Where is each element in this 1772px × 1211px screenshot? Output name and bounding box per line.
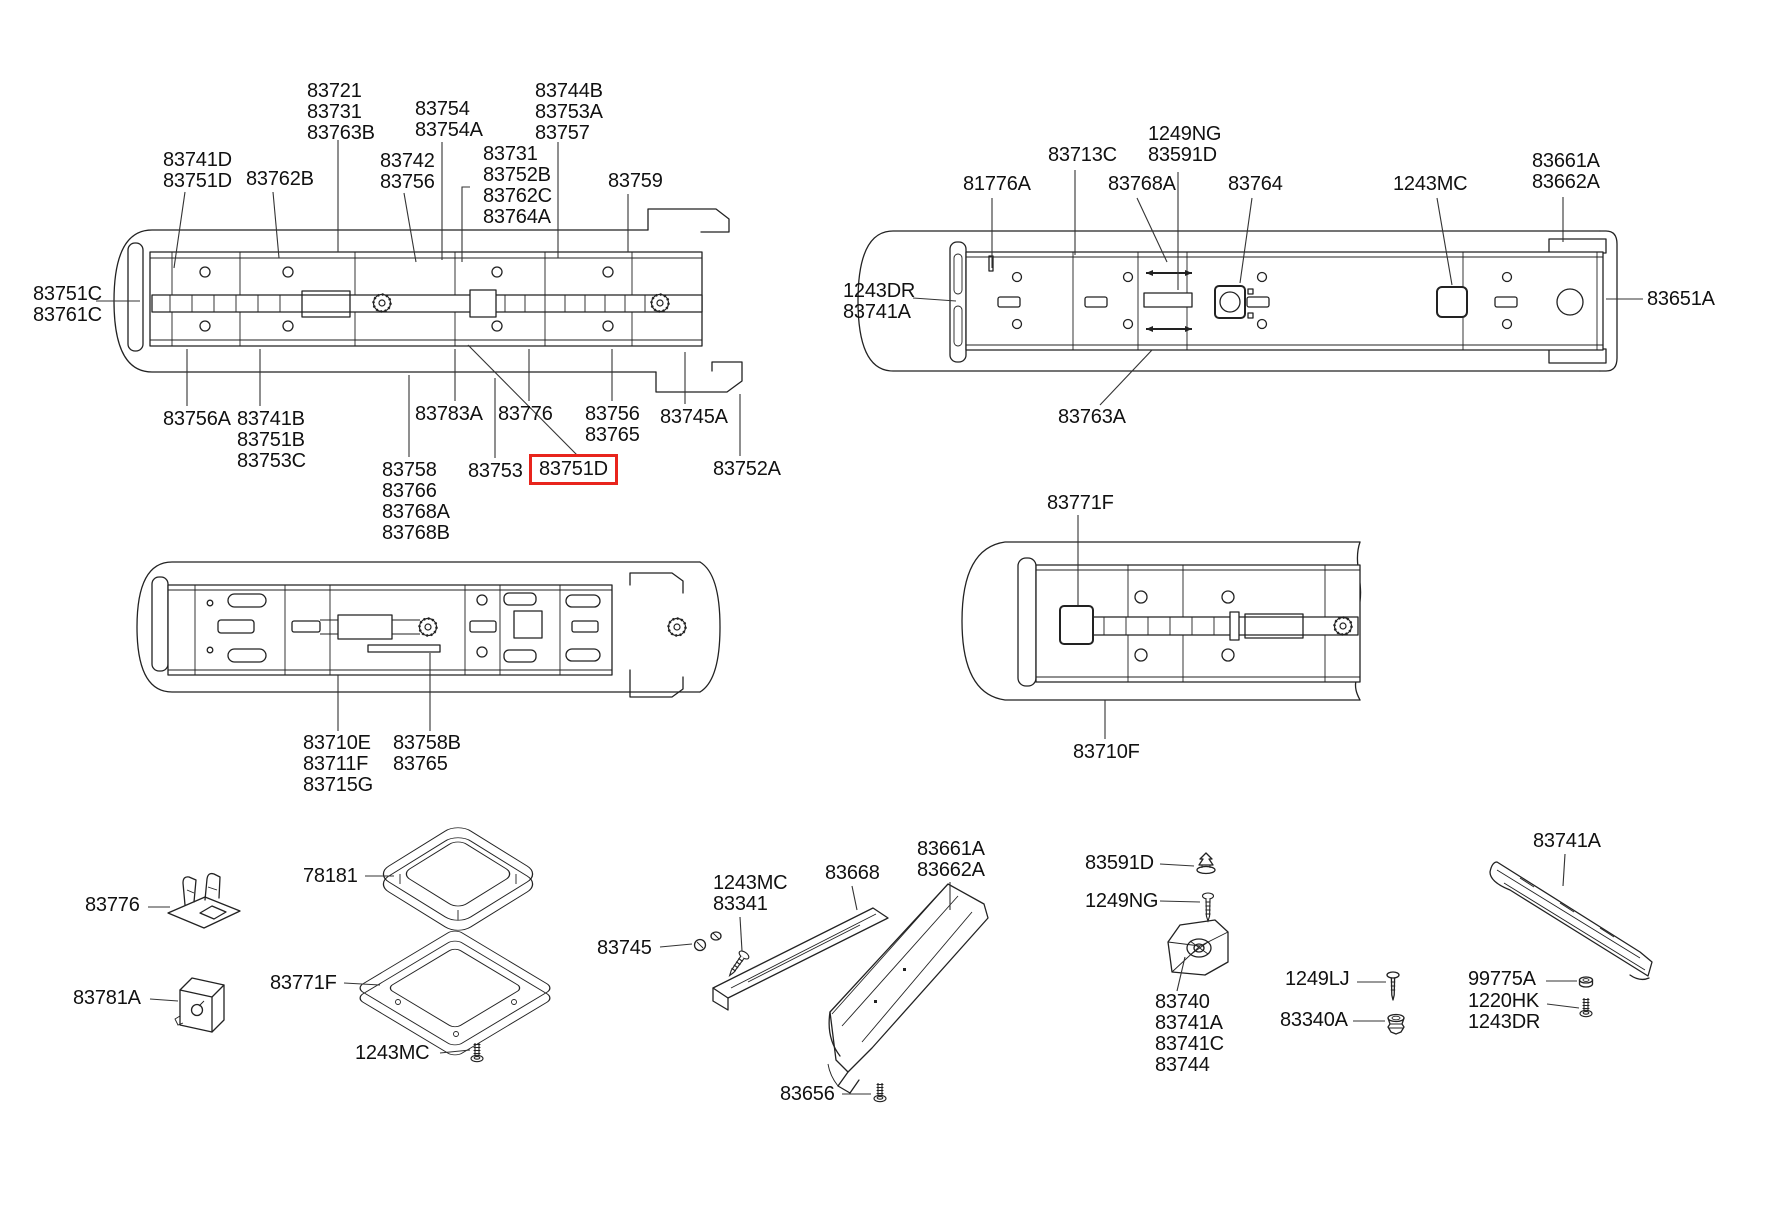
slider-block-83771F [1060,606,1093,644]
part-frame-83771F [356,929,554,1058]
parts-diagram-page: 83741D 83751D 83762B 83721 83731 83763B … [0,0,1772,1211]
end-trim-cap [950,242,966,362]
end-garnish-tab-top [1549,239,1606,253]
part-label-83340a: 83340A [1280,1010,1348,1031]
part-label-1243mc-d2: 1243MC [1393,174,1467,195]
part-label-1220hk-1243dr: 1220HK 1243DR [1468,991,1540,1033]
part-label-83741d-83751d: 83741D 83751D [163,150,232,192]
rail-roller-gear [669,619,686,636]
access-cover-square [1437,287,1467,317]
part-bracket-83740 [1168,920,1228,975]
rail-connector-bar [368,645,440,652]
part-label-83756-83765: 83756 83765 [585,404,640,446]
part-label-83762b: 83762B [246,169,314,190]
part-label-83744b-group: 83744B 83753A 83757 [535,81,603,144]
part-label-1243mc-83341: 1243MC 83341 [713,873,787,915]
end-garnish-tab-bottom [1549,349,1606,363]
part-label-83710e-group: 83710E 83711F 83715G [303,733,373,796]
end-cap-hook-top [648,209,729,232]
part-label-83768a: 83768A [1108,174,1176,195]
part-label-83713c: 83713C [1048,145,1117,166]
part-gasket-78181 [376,823,540,935]
part-label-83776-d1: 83776 [498,404,553,425]
part-strip-83741A [1490,862,1652,979]
part-label-83763a: 83763A [1058,407,1126,428]
rail-roller-gear [420,619,437,636]
end-trim-cap [1018,558,1036,686]
rail-coupler-block [470,290,496,317]
part-grommet-83340A [1388,1015,1404,1035]
part-label-83651a: 83651A [1647,289,1715,310]
curtain-rail [1092,617,1358,635]
rail-coupler-block [514,611,542,638]
part-label-83754-group: 83754 83754A [415,99,483,141]
part-nut-99775A [1580,977,1593,987]
end-cap-hook-bottom [630,670,683,697]
part-label-83661a-83662a-part: 83661A 83662A [917,839,985,881]
end-trim-cap [152,577,168,671]
part-label-83742-83756: 83742 83756 [380,151,435,193]
part-label-83781a: 83781A [73,988,141,1009]
trim-rail-assembly-view-2 [858,231,1617,371]
part-label-83741a-part: 83741A [1533,831,1601,852]
trim-rail-assembly-view-4 [962,542,1361,700]
part-label-83740-group: 83740 83741A 83741C 83744 [1155,992,1224,1076]
end-cap-hook-top [630,573,683,593]
part-label-83741b-group: 83741B 83751B 83753C [237,409,306,472]
part-label-83753: 83753 [468,461,523,482]
part-label-83668: 83668 [825,863,880,884]
part-clip-83776 [168,874,240,928]
screw-1220hk-1243dr [1580,998,1592,1017]
part-label-83745: 83745 [597,938,652,959]
part-label-83771f-d4: 83771F [1047,493,1114,514]
rail-roller-gear [652,295,669,312]
screw-1243mc-left [471,1043,483,1062]
part-label-83759: 83759 [608,171,663,192]
part-label-83783a: 83783A [415,404,483,425]
part-label-83771f-part: 83771F [270,973,337,994]
part-label-83764: 83764 [1228,174,1283,195]
part-label-83751c-83761c: 83751C 83761C [33,284,102,326]
rail-end-bracket [1230,612,1239,640]
part-label-83731-group: 83731 83752B 83762C 83764A [483,144,552,228]
part-label-83591d-part: 83591D [1085,853,1154,874]
part-label-1243dr-83741a: 1243DR 83741A [843,281,915,323]
part-label-83710f: 83710F [1073,742,1140,763]
part-label-78181: 78181 [303,866,358,887]
part-label-1249ng-part: 1249NG [1085,891,1158,912]
part-label-1243mc-bottom-left: 1243MC [355,1043,429,1064]
part-label-1249ng-83591d: 1249NG 83591D [1148,124,1221,166]
part-label-83751d-highlighted[interactable]: 83751D [529,454,618,485]
part-label-83745a: 83745A [660,407,728,428]
part-label-83661a-83662a-d2: 83661A 83662A [1532,151,1600,193]
screw-1243mc-83341 [725,949,750,978]
part-label-83656: 83656 [780,1084,835,1105]
end-cap-hook-bottom [656,362,742,392]
part-label-83758-group: 83758 83766 83768A 83768B [382,460,450,544]
screw-1249lj [1387,972,1399,1000]
part-clip-83591D [1197,853,1215,874]
screw-83656 [874,1083,886,1102]
part-fastener-83745 [695,932,722,951]
part-label-81776a: 81776A [963,174,1031,195]
part-label-1249lj: 1249LJ [1285,969,1349,990]
part-label-83752a: 83752A [713,459,781,480]
screw-1249ng [1203,893,1214,921]
part-label-83758b-83765: 83758B 83765 [393,733,461,775]
part-label-83776-part: 83776 [85,895,140,916]
rail-roller-gear [374,295,391,312]
part-label-99775a: 99775A [1468,969,1536,990]
rail-roller-gear [1335,618,1352,635]
trim-rail-assembly-view-3 [137,562,720,697]
part-box-83781A [175,978,224,1032]
part-panel-83661A-83662A [828,884,988,1093]
part-label-83756a: 83756A [163,409,231,430]
trim-rail-assembly-view-1 [114,209,742,392]
curtain-rail [152,295,702,312]
end-trim-cap [128,243,143,351]
part-label-83721-group: 83721 83731 83763B [307,81,375,144]
